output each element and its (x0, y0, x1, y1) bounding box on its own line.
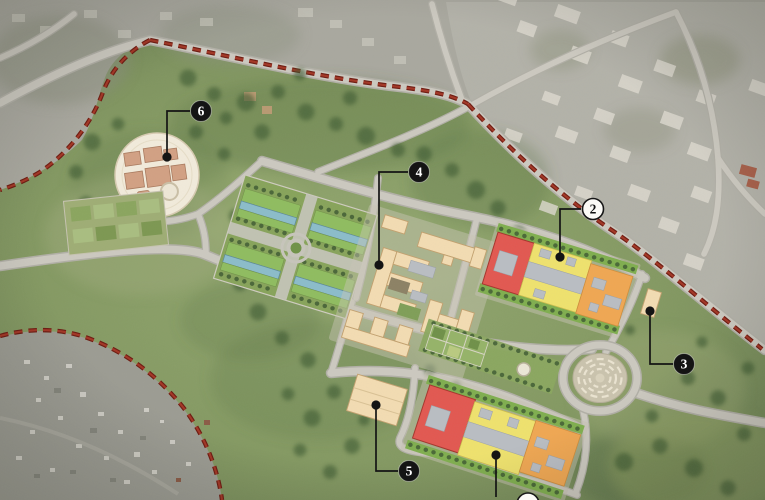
marker-number: 6 (198, 104, 205, 119)
master-plan-map: 6 4 2 3 5 (0, 0, 765, 500)
marker-number: 4 (416, 165, 423, 180)
grain-texture (0, 0, 765, 500)
site-plan-canvas: 6 4 2 3 5 (0, 0, 765, 500)
anchor-dot (491, 450, 500, 459)
marker-number: 2 (590, 202, 597, 217)
anchor-dot (645, 306, 654, 315)
anchor-dot (162, 152, 171, 161)
marker-number: 5 (406, 464, 413, 479)
marker-number: 3 (681, 357, 688, 372)
anchor-dot (555, 252, 564, 261)
anchor-dot (374, 260, 383, 269)
anchor-dot (371, 400, 380, 409)
